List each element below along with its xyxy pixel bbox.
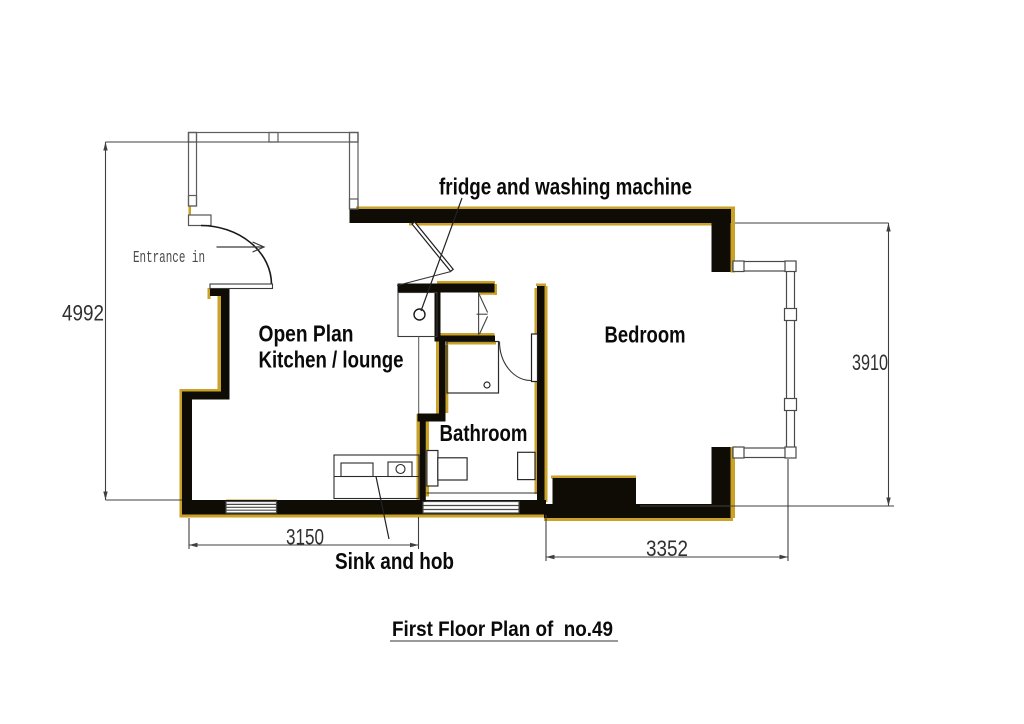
svg-text:4992: 4992 — [62, 301, 104, 326]
svg-text:3150: 3150 — [286, 525, 324, 550]
svg-text:First Floor Plan of no.49: First Floor Plan of no.49 — [392, 617, 613, 641]
svg-text:Bedroom: Bedroom — [605, 322, 686, 348]
svg-text:Open Plan: Open Plan — [259, 321, 354, 347]
svg-text:3910: 3910 — [852, 350, 888, 375]
svg-text:Entrance in: Entrance in — [133, 248, 205, 267]
svg-text:Bathroom: Bathroom — [440, 420, 528, 446]
svg-text:fridge and washing machine: fridge and washing machine — [439, 174, 692, 200]
svg-text:Kitchen / lounge: Kitchen / lounge — [259, 347, 404, 373]
svg-text:3352: 3352 — [646, 536, 688, 561]
svg-text:Sink and hob: Sink and hob — [335, 548, 454, 574]
